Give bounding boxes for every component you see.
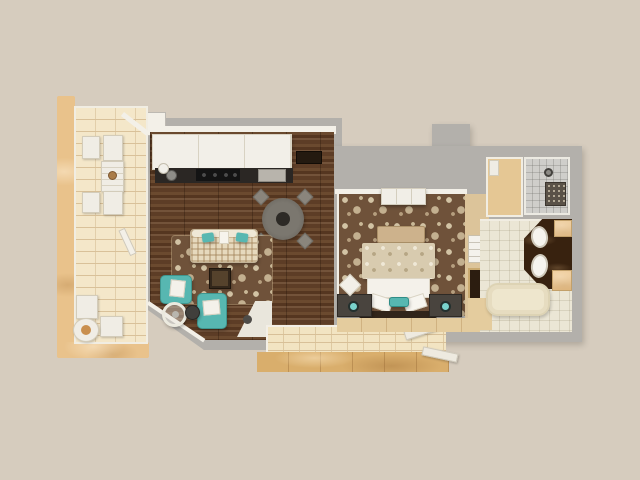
vanity-counter-end <box>552 270 572 291</box>
bistro-chair <box>76 295 98 319</box>
shower-mat <box>545 182 566 206</box>
bed-bench <box>377 226 425 243</box>
bathtub <box>486 283 550 316</box>
patio-armchair <box>82 192 100 213</box>
sofa-pillow-teal <box>235 232 248 243</box>
cooktop <box>196 169 240 181</box>
glass-table-decor <box>172 311 179 318</box>
dark-side-table <box>185 305 200 320</box>
room-walk-in-closet <box>486 157 523 217</box>
room-hallway <box>337 318 489 332</box>
sofa-throw <box>219 231 229 244</box>
sofa-pillow-teal <box>201 232 214 243</box>
patio-bowl <box>108 171 117 180</box>
room-shower <box>524 157 570 215</box>
counter-appliance-mat <box>258 169 286 182</box>
wall-console <box>296 151 322 164</box>
shower-head <box>544 168 553 177</box>
table-lamp-teal <box>348 301 359 312</box>
bed-duvet <box>362 243 435 279</box>
vanity-counter-end <box>554 220 572 237</box>
planter-ledge-bottom <box>57 342 149 358</box>
dresser <box>381 188 426 205</box>
flower-centerpiece <box>81 325 91 335</box>
kettle <box>158 163 169 174</box>
patio-armchair <box>103 191 123 215</box>
bistro-chair <box>100 316 123 337</box>
rear-balcony-floor <box>257 352 449 372</box>
patio-armchair <box>103 135 123 161</box>
kitchen-upper-cabinets <box>152 134 292 170</box>
table-lamp-teal <box>440 301 451 312</box>
coffee-table-top <box>212 271 228 286</box>
patio-armchair <box>82 136 100 159</box>
closet-shelf <box>489 160 499 176</box>
planter-ledge-left <box>57 96 75 348</box>
bed-pillow-teal <box>389 297 409 307</box>
armchair-cushion <box>202 299 220 315</box>
corner-pad-disc <box>243 315 252 324</box>
floor-plan-render <box>0 0 640 480</box>
armchair-cushion <box>169 279 186 297</box>
dining-centerpiece <box>276 212 290 226</box>
